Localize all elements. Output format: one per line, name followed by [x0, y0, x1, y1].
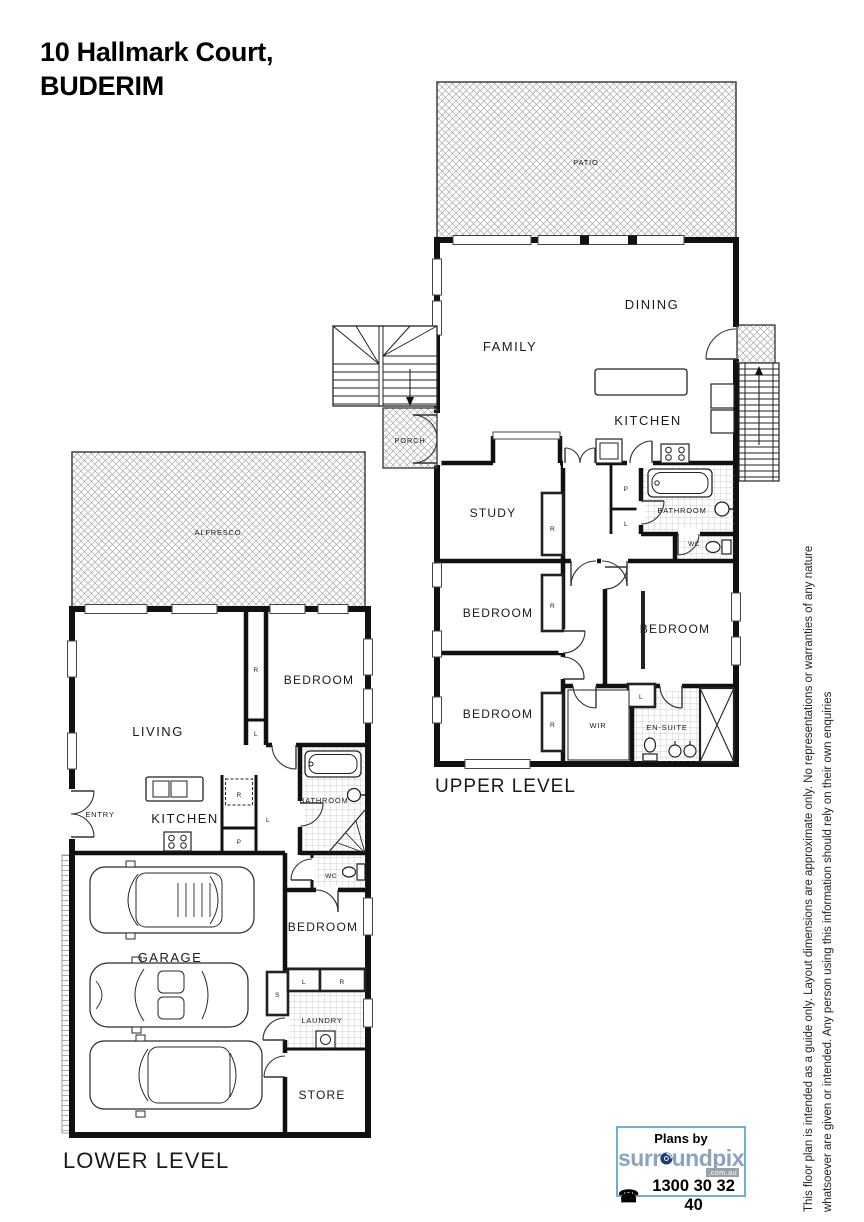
room-label-bedroom-lower: BEDROOM	[463, 707, 533, 721]
room-label-garage: GARAGE	[138, 950, 203, 965]
upper-level-floor-plan: PATIO DINING FAMILY KITCHEN PORCH STUDY …	[330, 73, 790, 785]
brand-tld: .com.au	[706, 1168, 739, 1177]
room-label-dining: DINING	[625, 297, 680, 312]
room-label-ensuite: EN-SUITE	[646, 723, 687, 732]
brand-name-post: undpix	[672, 1147, 744, 1170]
robe-label: R	[550, 722, 555, 729]
internal-staircase	[333, 326, 437, 406]
telephone-icon: ☎	[618, 1188, 639, 1205]
room-label-laundry: LAUNDRY	[301, 1016, 342, 1025]
toilet-icon	[706, 542, 720, 553]
phone-row: ☎ 1300 30 32 40	[618, 1177, 744, 1215]
upper-level-caption: UPPER LEVEL	[435, 776, 576, 798]
brand-wordmark: surrundpix	[618, 1147, 744, 1170]
linen-label: L	[302, 979, 306, 986]
sink-icon	[153, 781, 169, 797]
robe-label: R	[339, 979, 344, 986]
cooktop-icon	[164, 832, 191, 851]
room-label-bathroom: BATHROOM	[657, 506, 706, 515]
room-label-wc: WC	[688, 541, 700, 548]
room-label-entry: ENTRY	[85, 810, 114, 819]
robe-label: R	[550, 603, 555, 610]
page-title: 10 Hallmark Court, BUDERIM	[40, 36, 273, 104]
room-label-kitchen: KITCHEN	[614, 413, 682, 428]
lower-level-caption: LOWER LEVEL	[63, 1148, 229, 1174]
pantry-label: P	[237, 839, 242, 846]
sink-icon	[171, 781, 187, 797]
lower-level-floor-plan: ALFRESCO LIVING BEDROOM R L ENTRY KITCHE…	[60, 443, 380, 1153]
room-label-bedroom-right: BEDROOM	[640, 622, 710, 636]
room-label-bedroom-upper: BEDROOM	[284, 673, 354, 687]
room-label-bathroom: BATHROOM	[299, 796, 348, 805]
title-line2: BUDERIM	[40, 70, 273, 104]
room-label-patio: PATIO	[573, 158, 598, 167]
external-staircase	[737, 325, 779, 481]
basin-icon	[348, 789, 361, 802]
ensuite-basin-icon	[669, 745, 681, 757]
disclaimer-text: This floor plan is intended as a guide o…	[800, 486, 838, 1212]
room-label-wc: WC	[325, 873, 337, 880]
disclaimer-line1: This floor plan is intended as a guide o…	[803, 546, 815, 1212]
cooktop-icon	[661, 444, 689, 463]
room-label-bedroom-mid: BEDROOM	[463, 606, 533, 620]
room-label-alfresco: ALFRESCO	[195, 528, 242, 537]
surroundpix-logo: Plans by surrundpix .com.au ☎ 1300 30 32…	[616, 1126, 746, 1197]
phone-number: 1300 30 32 40	[643, 1177, 744, 1215]
kitchen-island	[595, 369, 687, 395]
ensuite-basin-icon	[684, 745, 696, 757]
room-label-bedroom-lower: BEDROOM	[288, 920, 358, 934]
robe-label: R	[550, 526, 555, 533]
room-label-family: FAMILY	[483, 339, 537, 354]
linen-label: L	[639, 694, 643, 701]
room-label-study: STUDY	[470, 506, 517, 520]
room-label-living: LIVING	[132, 724, 184, 739]
robe-study	[542, 493, 563, 555]
brand-name-pre: surr	[618, 1147, 661, 1170]
car-sports-icon	[90, 957, 248, 1033]
linen-label: L	[266, 817, 270, 824]
basin-icon	[715, 502, 729, 516]
floor-plan-page: 10 Hallmark Court, BUDERIM	[0, 0, 864, 1222]
linen-label: L	[624, 521, 628, 528]
title-line1: 10 Hallmark Court,	[40, 36, 273, 70]
room-label-wir: WIR	[590, 721, 607, 730]
fridge-label: R	[236, 792, 241, 799]
linen-label: L	[254, 731, 258, 738]
plans-by-label: Plans by	[618, 1131, 744, 1146]
room-label-store: STORE	[298, 1088, 345, 1102]
room-label-porch: PORCH	[394, 436, 425, 445]
car-sedan-icon	[90, 1035, 262, 1117]
fridge-icon	[711, 384, 734, 408]
robe-label: R	[253, 667, 258, 674]
toilet-icon	[343, 867, 356, 877]
disclaimer-line2: whatsoever are given or intended. Any pe…	[822, 692, 834, 1212]
car-suv-icon	[90, 861, 254, 939]
pantry-label: P	[624, 486, 629, 493]
room-label-kitchen: KITCHEN	[151, 811, 219, 826]
ensuite-toilet-icon	[645, 738, 656, 752]
store-cupboard-label: S	[275, 992, 280, 999]
